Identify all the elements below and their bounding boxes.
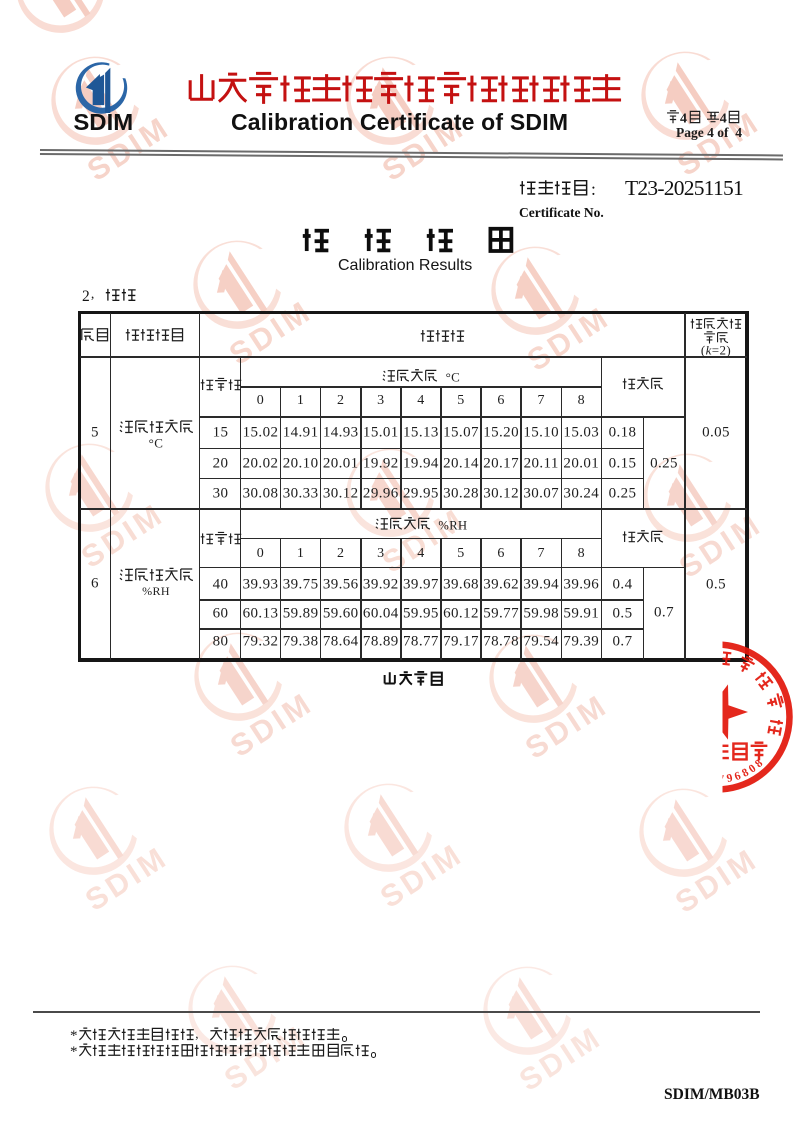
svg-text:7: 7 — [718, 774, 725, 786]
svg-text:9: 9 — [726, 772, 734, 785]
